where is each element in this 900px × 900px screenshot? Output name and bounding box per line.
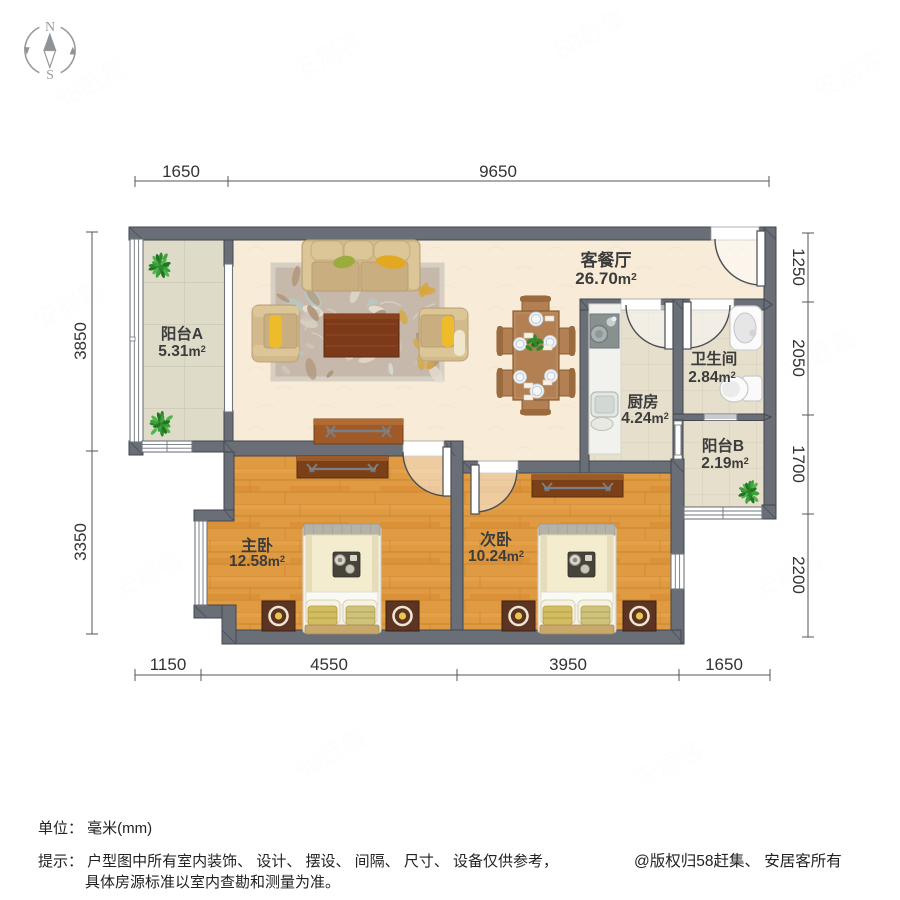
svg-text:4550: 4550	[310, 655, 348, 674]
svg-text:2.84m2: 2.84m2	[688, 369, 735, 386]
svg-text:卫生间: 卫生间	[691, 349, 738, 368]
svg-text:10.24m2: 10.24m2	[468, 548, 524, 565]
svg-text:安居客: 安居客	[810, 45, 889, 105]
svg-text:2050: 2050	[789, 339, 808, 377]
svg-text:2.19m2: 2.19m2	[701, 455, 748, 472]
svg-text:具体房源标准以室内查勘和测量为准。: 具体房源标准以室内查勘和测量为准。	[85, 874, 340, 891]
svg-text:安居客: 安居客	[110, 545, 189, 605]
svg-text:1250: 1250	[789, 248, 808, 286]
svg-text:1700: 1700	[789, 445, 808, 483]
svg-text:58赶集: 58赶集	[50, 54, 132, 115]
svg-text:9650: 9650	[479, 162, 517, 181]
svg-text:提示： 户型图中所有室内装饰、 设计、 摆设、 间隔、 尺寸: 提示： 户型图中所有室内装饰、 设计、 摆设、 间隔、 尺寸、 设备仅供参考，	[38, 853, 558, 870]
svg-text:12.58m2: 12.58m2	[229, 553, 285, 570]
svg-text:3350: 3350	[71, 523, 90, 561]
svg-text:3950: 3950	[549, 655, 587, 674]
svg-text:安居客: 安居客	[30, 275, 109, 335]
svg-text:3850: 3850	[71, 322, 90, 360]
svg-text:次卧: 次卧	[480, 530, 512, 549]
svg-text:1650: 1650	[705, 655, 743, 674]
svg-text:阳台B: 阳台B	[702, 436, 744, 455]
svg-text:安居客: 安居客	[630, 735, 709, 795]
svg-text:S: S	[46, 68, 54, 83]
svg-text:5.31m2: 5.31m2	[158, 343, 205, 360]
svg-text:N: N	[45, 20, 55, 35]
svg-text:58赶集: 58赶集	[290, 724, 372, 785]
svg-text:客餐厅: 客餐厅	[580, 250, 632, 270]
svg-text:1150: 1150	[150, 655, 187, 674]
svg-text:厨房: 厨房	[627, 392, 658, 411]
svg-text:安居客: 安居客	[290, 25, 369, 85]
svg-text:26.70m2: 26.70m2	[575, 269, 637, 288]
svg-text:4.24m2: 4.24m2	[621, 410, 668, 427]
svg-text:2200: 2200	[789, 556, 808, 594]
svg-text:单位： 毫米(mm): 单位： 毫米(mm)	[38, 819, 152, 837]
svg-text:@版权归58赶集、 安居客所有: @版权归58赶集、 安居客所有	[634, 852, 842, 870]
svg-text:58赶集: 58赶集	[550, 4, 632, 65]
svg-text:1650: 1650	[162, 162, 200, 181]
svg-text:阳台A: 阳台A	[161, 324, 203, 343]
